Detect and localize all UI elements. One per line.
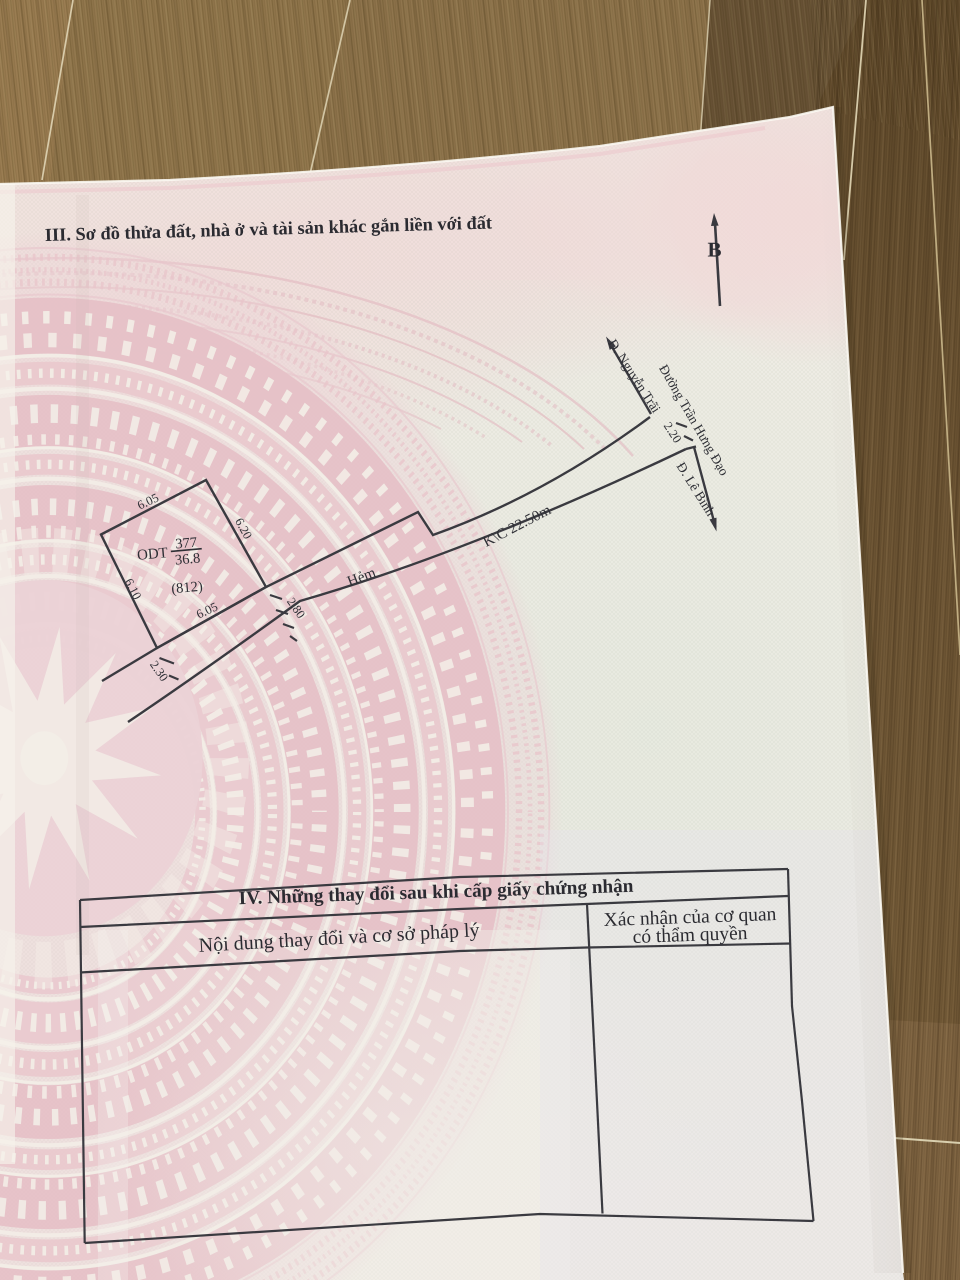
svg-text:B: B — [708, 238, 722, 262]
svg-text:36.8: 36.8 — [174, 550, 201, 568]
svg-text:ODT: ODT — [136, 545, 168, 564]
svg-text:có thẩm quyền: có thẩm quyền — [632, 923, 748, 948]
svg-text:(812): (812) — [171, 579, 204, 598]
